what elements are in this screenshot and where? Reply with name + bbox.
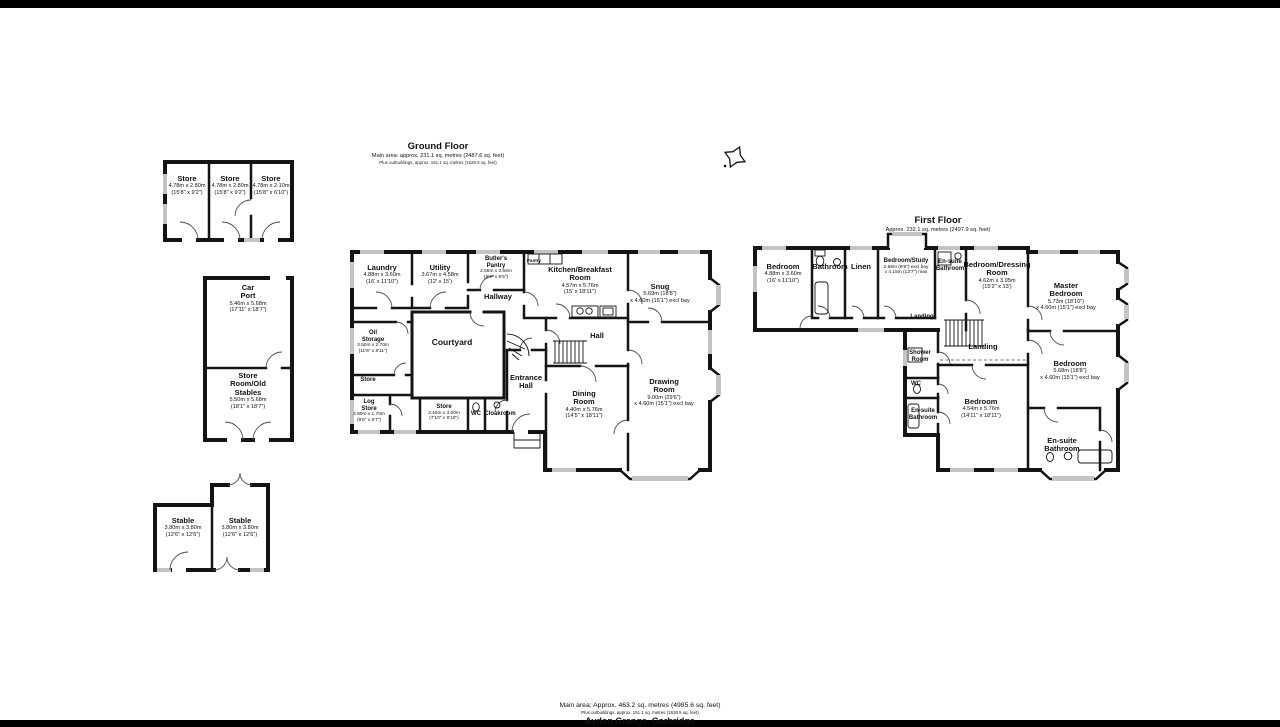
- room-dimensions: (14'11" x 18'11"): [921, 413, 1041, 420]
- room-label: Hall: [537, 332, 657, 340]
- ground-floor-outbuildings-area: Plus outbuildings, approx. 151.1 sq. met…: [308, 160, 568, 166]
- room-name: Landing: [862, 314, 982, 321]
- room-label: Shower Room: [860, 350, 980, 363]
- room-name: Master Bedroom: [1006, 282, 1126, 299]
- compass-icon: [720, 142, 750, 172]
- room-label: Oil Storage3.50m x 2.70m(11'6" x 8'11"): [313, 330, 433, 355]
- floorplan-canvas: Ground Floor Main area: approx. 231.1 sq…: [0, 8, 1280, 720]
- ground-floor-area: Main area: approx. 231.1 sq. metres (248…: [308, 153, 568, 160]
- room-label: Bedroom4.54m x 5.76m(14'11" x 18'11"): [921, 398, 1041, 420]
- room-label: Master Bedroom5.73m (18'10")x 4.60m (15'…: [1006, 282, 1126, 312]
- room-dimensions: 5.69m (18'8"): [600, 291, 720, 298]
- room-label: Hallway: [438, 293, 558, 301]
- room-dimensions: x 4.60m (15'1") excl bay: [604, 401, 724, 408]
- property-title: Aydon Grange, Corbridge: [390, 716, 890, 727]
- room-dimensions: 9.00m (29'6"): [604, 395, 724, 402]
- room-name: Car Port: [188, 284, 308, 301]
- room-name: Bedroom: [921, 398, 1041, 406]
- room-dimensions: 5.50m x 5.68m: [188, 397, 308, 404]
- room-label: Bedroom5.68m (18'8")x 4.60m (15'1") excl…: [1010, 360, 1130, 382]
- room-dimensions: (12'6" x 12'6"): [180, 532, 300, 539]
- room-label: Landing: [862, 314, 982, 321]
- room-dimensions: 5.46m x 5.68m: [188, 301, 308, 308]
- room-label: Pantry: [474, 258, 594, 263]
- room-dimensions: (15'8" x 6'10"): [211, 190, 331, 197]
- room-label: WC: [856, 381, 976, 388]
- room-name: Drawing Room: [604, 378, 724, 395]
- room-dimensions: 3.80m x 3.80m: [180, 525, 300, 532]
- room-name: Store: [211, 175, 331, 183]
- room-name: Store: [308, 377, 428, 384]
- room-label: En-suite Bathroom: [1002, 437, 1122, 454]
- room-dimensions: (16' x 11'10"): [723, 278, 843, 285]
- room-name: WC: [856, 381, 976, 388]
- room-dimensions: x 4.60m (15'1") excl bay: [600, 298, 720, 305]
- room-name: Hallway: [438, 293, 558, 301]
- ground-floor-title: Ground Floor: [308, 142, 568, 153]
- room-label: Stable3.80m x 3.80m(12'6" x 12'6"): [180, 517, 300, 539]
- room-name: Stable: [180, 517, 300, 525]
- room-name: En-suite Bathroom: [1002, 437, 1122, 454]
- room-dimensions: x 4.60m (15'1") excl bay: [1006, 305, 1126, 312]
- room-name: Oil Storage: [313, 330, 433, 343]
- room-label: Drawing Room9.00m (29'6")x 4.60m (15'1")…: [604, 378, 724, 408]
- room-label: Store4.78m x 2.10m(15'8" x 6'10"): [211, 175, 331, 197]
- first-floor-title-block: First Floor Approx. 232.1 sq. metres (24…: [808, 216, 1068, 234]
- footer: Main area: Approx. 463.2 sq. metres (498…: [390, 702, 890, 727]
- room-dimensions: 5.73m (18'10"): [1006, 299, 1126, 306]
- room-name: Bedroom/Dressing Room: [937, 261, 1057, 278]
- first-floor-title: First Floor: [808, 216, 1068, 227]
- room-label: Entrance Hall: [466, 374, 586, 391]
- room-dimensions: 4.88m x 3.60m: [723, 271, 843, 278]
- room-dimensions: 5.68m (18'8"): [1010, 368, 1130, 375]
- room-name: Store Room/Old Stables: [188, 372, 308, 397]
- first-floor-area: Approx. 232.1 sq. metres (2497.9 sq. fee…: [808, 227, 1068, 234]
- footer-main-area: Main area: Approx. 463.2 sq. metres (498…: [390, 702, 890, 710]
- room-name: Entrance Hall: [466, 374, 586, 391]
- room-dimensions: 4.78m x 2.10m: [211, 183, 331, 190]
- room-dimensions: (14'5" x 18'11"): [524, 413, 644, 420]
- room-label: Snug5.69m (18'8")x 4.60m (15'1") excl ba…: [600, 283, 720, 305]
- room-label: Store: [308, 377, 428, 384]
- room-dimensions: (17'11" x 18'7"): [188, 307, 308, 314]
- room-dimensions: (18'1" x 18'7"): [188, 404, 308, 411]
- room-label: Car Port5.46m x 5.68m(17'11" x 18'7"): [188, 284, 308, 314]
- room-name: Store: [384, 404, 504, 411]
- floorplan-page: { "property": { "footer_line1": "Main ar…: [0, 0, 1280, 720]
- room-dimensions: x 4.60m (15'1") excl bay: [1010, 375, 1130, 382]
- room-name: Bedroom: [1010, 360, 1130, 368]
- ground-floor-title-block: Ground Floor Main area: approx. 231.1 sq…: [308, 142, 568, 165]
- room-name: Kitchen/Breakfast Room: [520, 266, 640, 283]
- room-name: Shower Room: [860, 350, 980, 363]
- room-name: Pantry: [474, 258, 594, 263]
- room-name: Snug: [600, 283, 720, 291]
- room-dimensions: 4.54m x 5.76m: [921, 406, 1041, 413]
- room-name: Hall: [537, 332, 657, 340]
- room-dimensions: (11'6" x 8'11"): [313, 349, 433, 355]
- room-label: Store Room/Old Stables5.50m x 5.68m(18'1…: [188, 372, 308, 410]
